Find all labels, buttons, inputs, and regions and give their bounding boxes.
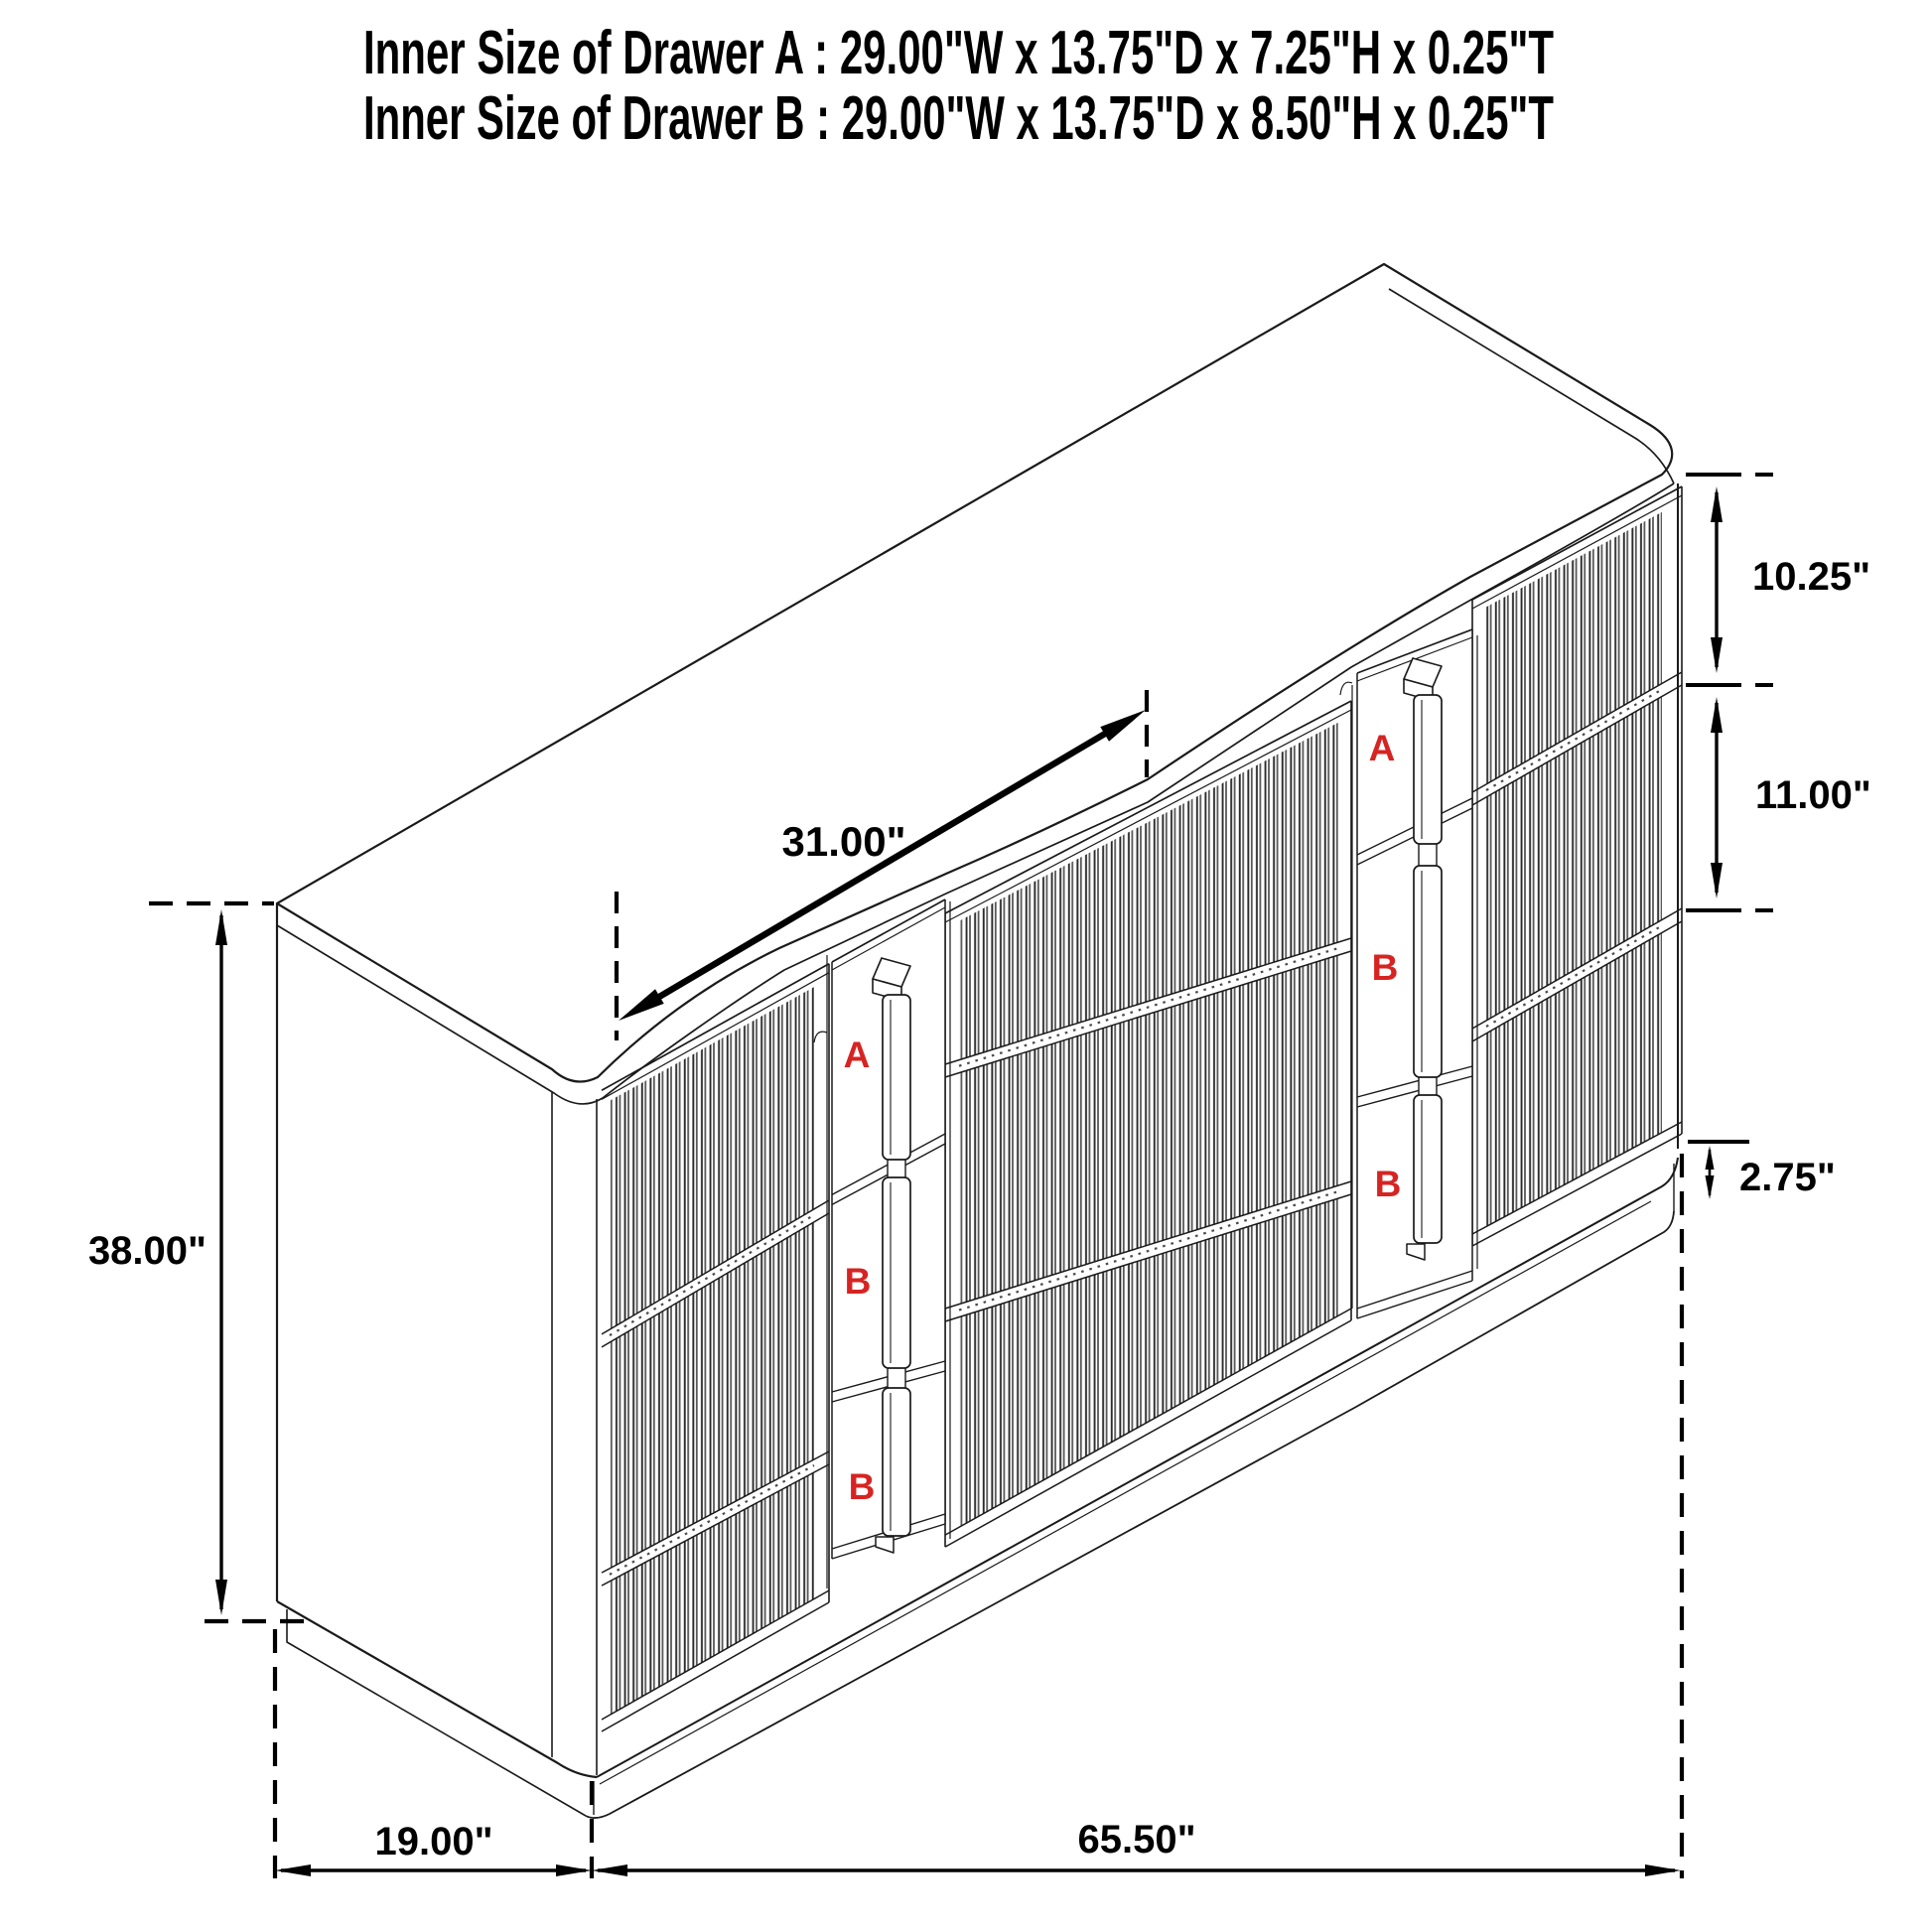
svg-text:19.00": 19.00": [374, 1820, 492, 1863]
svg-text:A: A: [1369, 728, 1396, 768]
svg-text:B: B: [1375, 1164, 1402, 1204]
svg-text:B: B: [849, 1466, 876, 1507]
svg-text:B: B: [1372, 947, 1399, 988]
svg-text:Inner Size of Drawer B : 29.00: Inner Size of Drawer B : 29.00"W x 13.75…: [363, 84, 1554, 153]
svg-text:Inner Size of Drawer A : 29.00: Inner Size of Drawer A : 29.00"W x 13.75…: [363, 19, 1554, 87]
svg-text:11.00": 11.00": [1755, 773, 1871, 817]
svg-text:2.75": 2.75": [1739, 1156, 1836, 1199]
svg-text:10.25": 10.25": [1752, 555, 1870, 599]
svg-text:31.00": 31.00": [781, 818, 905, 865]
svg-text:B: B: [845, 1261, 872, 1302]
svg-text:38.00": 38.00": [88, 1229, 207, 1273]
svg-text:65.50": 65.50": [1077, 1818, 1195, 1862]
svg-text:A: A: [844, 1035, 871, 1075]
